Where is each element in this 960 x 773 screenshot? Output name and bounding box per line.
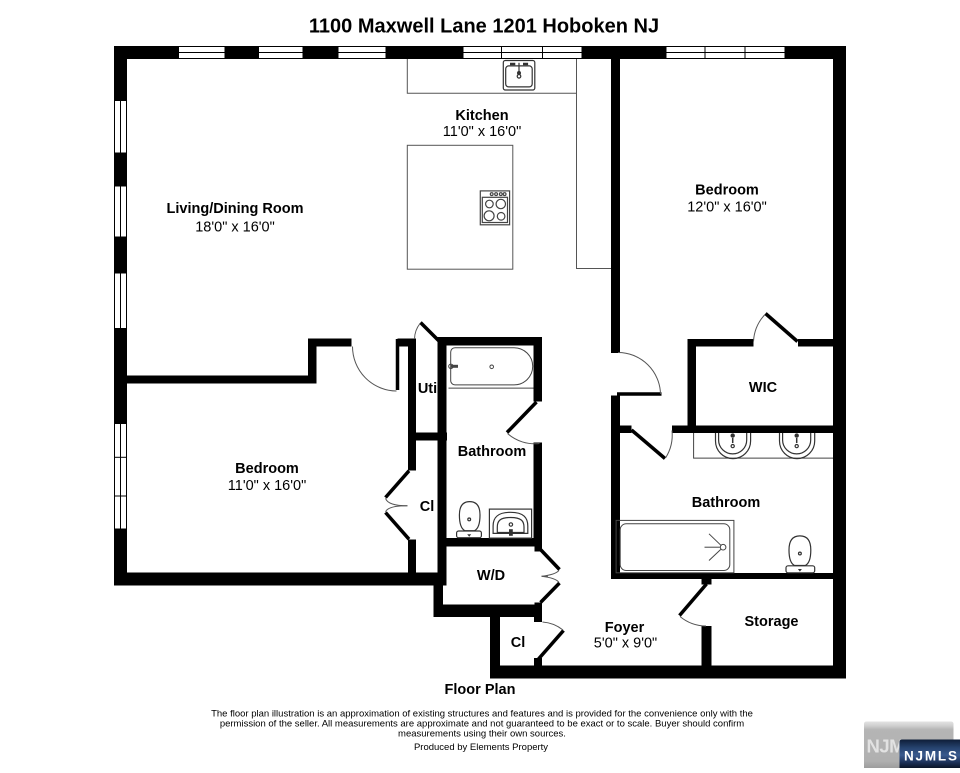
svg-text:Cl: Cl xyxy=(511,635,526,651)
svg-text:Produced by Elements Property: Produced by Elements Property xyxy=(414,742,548,753)
svg-text:5'0" x 9'0": 5'0" x 9'0" xyxy=(594,636,657,652)
svg-text:11'0" x 16'0": 11'0" x 16'0" xyxy=(228,478,306,494)
svg-text:1100 Maxwell Lane 1201 Hoboken: 1100 Maxwell Lane 1201 Hoboken NJ xyxy=(309,16,659,38)
svg-text:Bedroom: Bedroom xyxy=(235,461,299,477)
svg-text:Living/Dining Room: Living/Dining Room xyxy=(167,201,304,217)
svg-text:Storage: Storage xyxy=(745,614,799,630)
svg-text:WIC: WIC xyxy=(749,380,778,396)
svg-text:18'0" x 16'0": 18'0" x 16'0" xyxy=(195,220,275,236)
svg-text:Kitchen: Kitchen xyxy=(455,108,508,124)
svg-text:Cl: Cl xyxy=(420,499,435,515)
svg-text:Bathroom: Bathroom xyxy=(458,444,526,460)
svg-text:NJMLS: NJMLS xyxy=(904,749,959,764)
svg-text:12'0" x 16'0": 12'0" x 16'0" xyxy=(687,200,767,216)
svg-text:W/D: W/D xyxy=(477,568,505,584)
svg-text:measurements using their own s: measurements using their own sources. xyxy=(398,729,566,740)
svg-text:Bathroom: Bathroom xyxy=(692,495,760,511)
svg-text:Uti: Uti xyxy=(418,381,437,397)
svg-text:NJM: NJM xyxy=(867,736,905,757)
svg-text:11'0" x 16'0": 11'0" x 16'0" xyxy=(443,124,521,140)
svg-text:Foyer: Foyer xyxy=(605,620,645,636)
svg-text:Bedroom: Bedroom xyxy=(695,183,759,199)
svg-text:Floor Plan: Floor Plan xyxy=(445,682,516,698)
